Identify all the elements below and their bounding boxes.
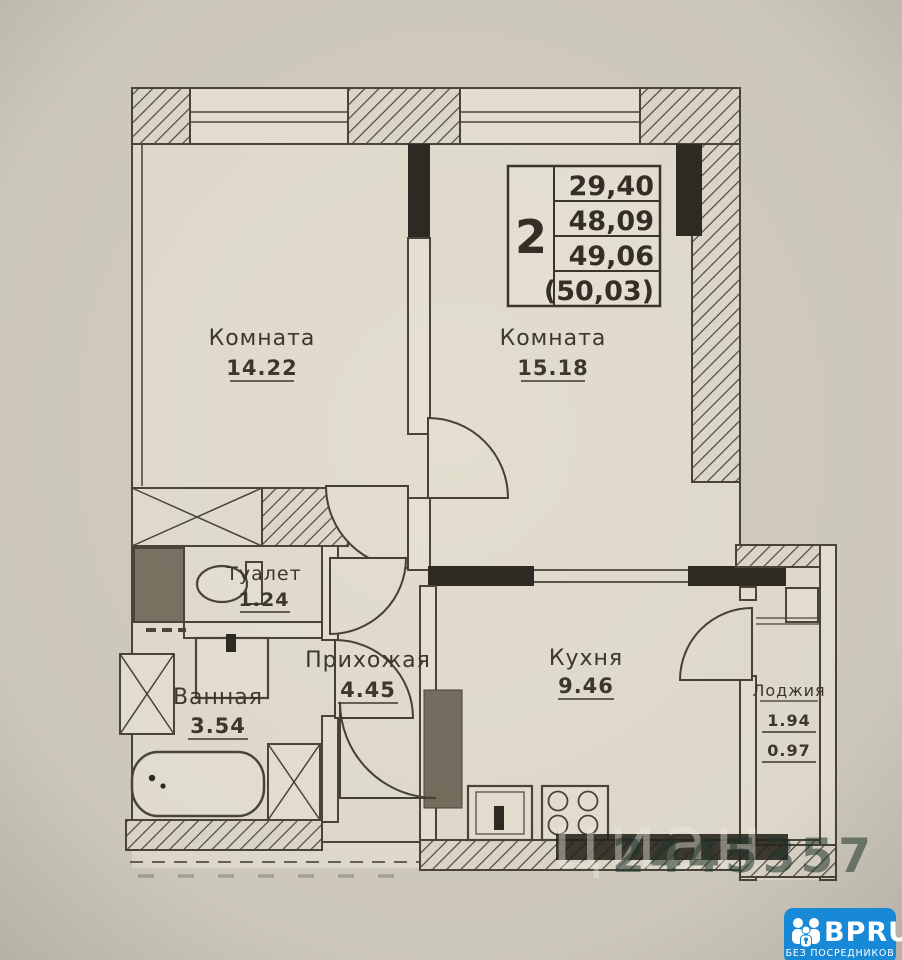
bpru-logo: BPRU БЕЗ ПОСРЕДНИКОВ (784, 908, 902, 960)
vignette-overlay (0, 0, 902, 960)
floor-plan-svg: 2 29,40 48,09 49,06 (50,03) Комната 14.2… (0, 0, 902, 960)
logo-text: BPRU (824, 917, 902, 948)
logo-tagline: БЕЗ ПОСРЕДНИКОВ (785, 948, 894, 959)
floor-plan-photo: 2 29,40 48,09 49,06 (50,03) Комната 14.2… (0, 0, 902, 960)
